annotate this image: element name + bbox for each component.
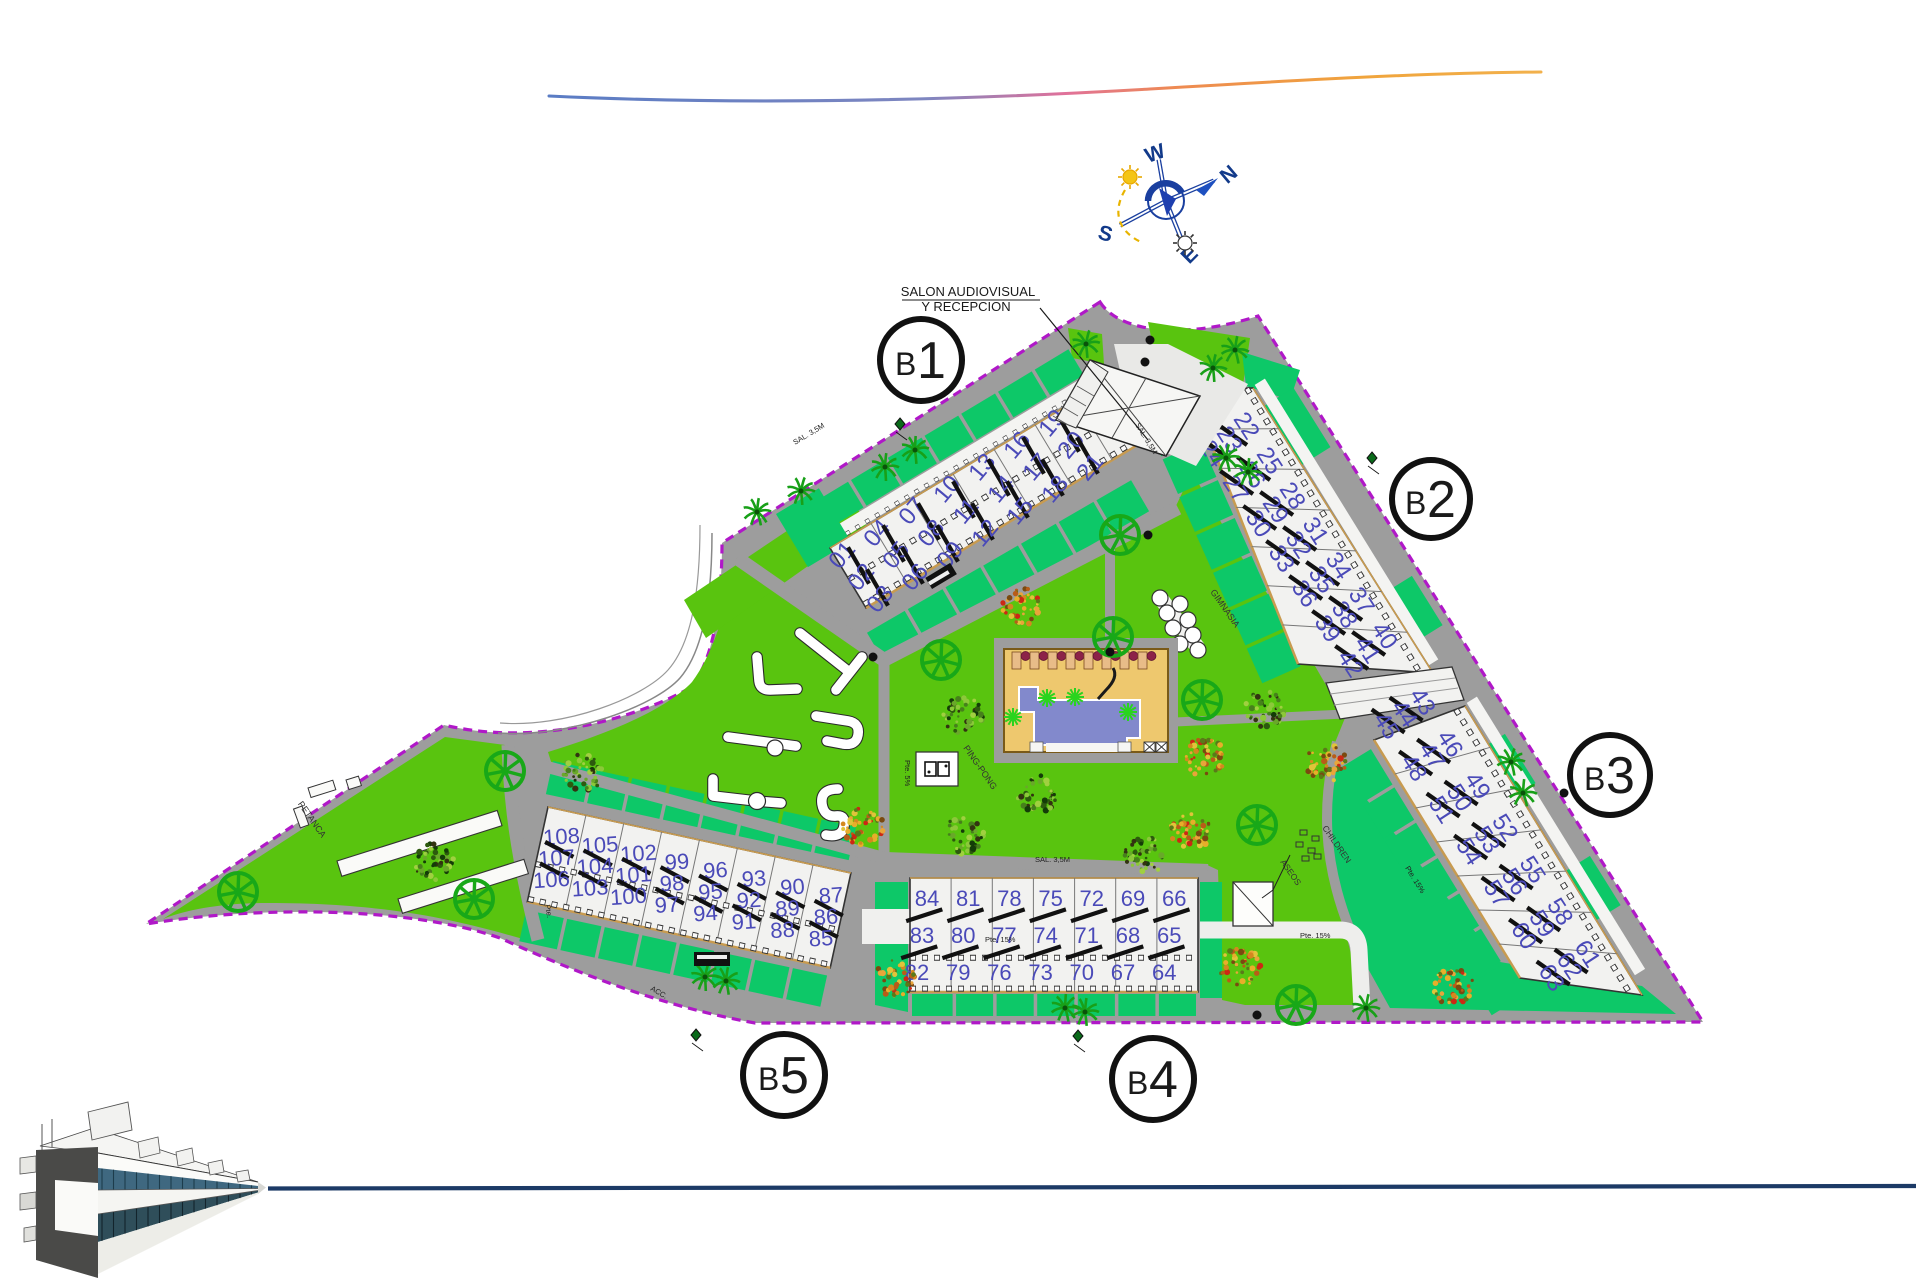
svg-text:B: B — [1405, 485, 1426, 521]
svg-text:103: 103 — [571, 874, 609, 902]
svg-text:106: 106 — [532, 866, 570, 894]
svg-text:B: B — [1584, 761, 1605, 797]
svg-text:83: 83 — [910, 923, 934, 948]
svg-text:75: 75 — [1038, 886, 1062, 911]
svg-text:B: B — [758, 1061, 779, 1097]
svg-text:76: 76 — [987, 960, 1011, 985]
svg-text:5: 5 — [780, 1047, 809, 1105]
svg-text:B: B — [1127, 1065, 1148, 1101]
svg-text:73: 73 — [1028, 960, 1052, 985]
svg-text:Y RECEPCION: Y RECEPCION — [921, 299, 1010, 314]
svg-text:71: 71 — [1075, 923, 1099, 948]
svg-text:4: 4 — [1149, 1051, 1178, 1109]
svg-text:70: 70 — [1070, 960, 1094, 985]
svg-text:91: 91 — [731, 908, 757, 935]
svg-text:78: 78 — [997, 886, 1021, 911]
svg-text:100: 100 — [609, 883, 647, 911]
svg-text:1: 1 — [917, 332, 946, 390]
svg-text:65: 65 — [1157, 923, 1181, 948]
svg-text:68: 68 — [1116, 923, 1140, 948]
svg-text:2: 2 — [1427, 471, 1456, 529]
svg-text:81: 81 — [956, 886, 980, 911]
svg-text:SAL. 3,5M: SAL. 3,5M — [1035, 855, 1070, 864]
svg-text:97: 97 — [654, 891, 680, 918]
svg-text:84: 84 — [915, 886, 939, 911]
svg-text:74: 74 — [1033, 923, 1057, 948]
svg-text:79: 79 — [946, 960, 970, 985]
svg-text:66: 66 — [1162, 886, 1186, 911]
svg-text:64: 64 — [1152, 960, 1176, 985]
svg-text:72: 72 — [1080, 886, 1104, 911]
svg-text:3: 3 — [1606, 747, 1635, 805]
svg-text:67: 67 — [1111, 960, 1135, 985]
svg-text:85: 85 — [808, 925, 834, 952]
svg-text:B: B — [895, 346, 916, 382]
svg-text:80: 80 — [951, 923, 975, 948]
svg-text:Pte. 15%: Pte. 15% — [985, 935, 1016, 944]
svg-text:Pte. 15%: Pte. 15% — [1300, 931, 1331, 940]
svg-text:69: 69 — [1121, 886, 1145, 911]
svg-text:Pte. 5%: Pte. 5% — [903, 760, 912, 787]
svg-text:94: 94 — [692, 900, 718, 927]
svg-text:SALON AUDIOVISUAL: SALON AUDIOVISUAL — [901, 284, 1035, 299]
svg-text:88: 88 — [769, 917, 795, 944]
